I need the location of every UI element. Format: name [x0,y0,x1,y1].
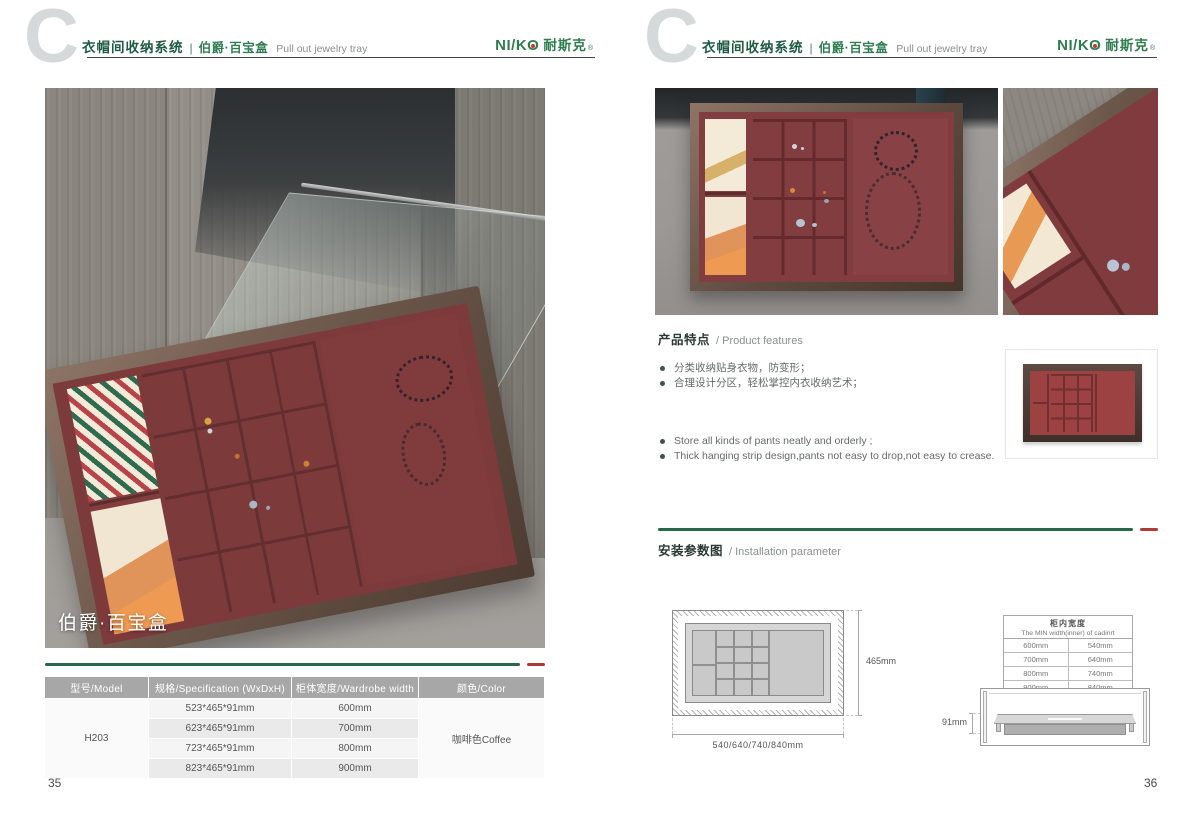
table-row: 800mm 740mm [1004,667,1132,681]
spec-cell: 900mm [292,759,418,778]
spec-cell: 800mm [292,739,418,758]
dimension-line [858,610,859,716]
product-features-english: Store all kinds of pants neatly and orde… [658,434,1018,464]
cabinet-outline [672,610,844,716]
header-subtitle: Pull out jewelry tray [276,43,367,55]
tray-floor-drawing [692,630,824,696]
jewelry-tray [690,103,963,291]
necklace [396,418,451,489]
feature-item: Thick hanging strip design,pants not eas… [658,449,1018,464]
table-title-zh: 柜内宽度 [1004,618,1132,629]
spec-color-cell: 咖啡色Coffee [419,699,544,778]
feature-item: 分类收纳贴身衣物，防变形； [658,361,1003,376]
min-width-table-header: 柜内宽度 The MIN width(inner) of cadinrt [1004,616,1132,639]
brand-trademark: ® [1150,45,1155,52]
tray-scarf-column [1033,374,1049,433]
features-title: 产品特点 / Product features [658,329,1003,348]
bullet-icon [660,454,665,459]
wall-line [768,631,770,695]
spec-header-specification: 规格/Specification (WxDxH) [149,677,291,698]
tray-profile-bottom [1004,724,1126,735]
tray-compartment-grid [753,119,847,275]
features-title-en: / Product features [716,335,803,347]
catalog-spread: C 衣帽间收纳系统 | 伯爵·百宝盒 Pull out jewelry tray… [0,0,1200,820]
wall-line [693,664,715,666]
spec-cell: 623*465*91mm [149,719,291,738]
table-row: 600mm 540mm [1004,639,1132,653]
header-titles: 衣帽间收纳系统 | 伯爵·百宝盒 Pull out jewelry tray [702,36,987,56]
table-row: 700mm 640mm [1004,653,1132,667]
header-series: 伯爵·百宝盒 [819,37,889,56]
brand-trademark: ® [588,45,593,52]
separator-red [527,663,545,666]
left-page-header: C 衣帽间收纳系统 | 伯爵·百宝盒 Pull out jewelry tray… [28,14,595,66]
wall-line [715,662,768,664]
tray-scarf-column [705,119,746,275]
separator-red [1140,528,1158,531]
bullet-icon [660,366,665,371]
spec-cell: 823*465*91mm [149,759,291,778]
wall-line [715,678,768,680]
features-title-zh: 产品特点 [658,329,710,348]
right-page-header: C 衣帽间收纳系统 | 伯爵·百宝盒 Pull out jewelry tray… [648,14,1157,66]
brand-logo-latin: NI/KO [1057,37,1101,54]
spec-header-color: 颜色/Color [419,677,544,698]
wardrobe-photo: 伯爵·百宝盒 [45,88,545,648]
extension-line [843,718,844,734]
header-rule [707,57,1157,58]
separator-green [658,528,1133,531]
spec-cell: 723*465*91mm [149,739,291,758]
header-series: 伯爵·百宝盒 [199,37,269,56]
page-number-left: 35 [48,776,61,790]
width-dimension-label: 540/640/740/840mm [672,740,844,750]
features-list-en: Store all kinds of pants neatly and orde… [658,434,1018,464]
dimension-line [972,713,973,734]
bullet-icon [660,439,665,444]
spec-table: 型号/Model 规格/Specification (WxDxH) 柜体宽度/W… [45,677,545,778]
product-features-section: 产品特点 / Product features 分类收纳贴身衣物，防变形； 合理… [658,329,1003,391]
bullet-icon [660,381,665,386]
min-width-table: 柜内宽度 The MIN width(inner) of cadinrt 600… [1003,615,1133,695]
features-list-zh: 分类收纳贴身衣物，防变形； 合理设计分区，轻松掌控内衣收纳艺术； [658,361,1003,391]
tray-interior [699,112,954,282]
scarf [705,197,746,275]
table-title-en: The MIN width(inner) of cadinrt [1004,630,1132,637]
spec-cell: 600mm [292,699,418,718]
brand-logo-cjk: 耐斯克 [1105,34,1149,54]
installation-title-zh: 安装参数图 [658,540,723,559]
extension-line [846,715,858,716]
header-titles: 衣帽间收纳系统 | 伯爵·百宝盒 Pull out jewelry tray [82,36,367,56]
header-category: 衣帽间收纳系统 [82,36,184,56]
installation-title: 安装参数图 / Installation parameter [658,540,841,559]
spec-header-model: 型号/Model [45,677,148,698]
tray-interior [1030,371,1135,435]
photo-caption: 伯爵·百宝盒 [58,608,168,635]
tray-frame-drawing [685,623,831,703]
scarf [705,119,746,191]
page-number-right: 36 [1144,776,1157,790]
sideview-drawing: 91mm [930,686,1158,750]
separator-line [45,663,545,666]
extension-line [672,718,673,734]
spec-cell: 523*465*91mm [149,699,291,718]
table-cell: 540mm [1069,639,1133,652]
cabinet-side-panel [1143,691,1147,743]
tray-divider [1095,374,1097,433]
wall-line [715,646,768,648]
height-dimension-label: 91mm [942,717,967,727]
brand-logo: NI/KO 耐斯克 ® [495,34,593,54]
tray-topview-photo [655,88,998,315]
cabinet-line [989,693,1141,694]
product-thumbnail [1005,349,1158,459]
brand-logo-cjk: 耐斯克 [543,34,587,54]
necklace [874,131,918,171]
jewelry-item [792,144,797,149]
table-cell: 740mm [1069,667,1133,680]
jewelry-item [249,500,258,509]
jewelry-item [1105,257,1122,274]
tray-compartment-grid [1051,374,1093,433]
c-monogram-icon: C [24,2,79,72]
header-rule [87,57,595,58]
cabinet-inner [678,616,838,710]
header-category: 衣帽间收纳系统 [702,36,804,56]
extension-line [846,610,858,611]
brand-logo-latin: NI/KO [495,37,539,54]
separator-green [45,663,520,666]
table-cell: 800mm [1004,667,1069,680]
tray-render [1023,364,1142,442]
feature-item: 合理设计分区，轻松掌控内衣收纳艺术； [658,376,1003,391]
header-divider: | [190,41,193,55]
depth-dimension-label: 465mm [866,656,896,666]
brand-logo: NI/KO 耐斯克 ® [1057,34,1155,54]
installation-title-en: / Installation parameter [729,546,841,558]
dimension-line [672,734,844,735]
table-cell: 700mm [1004,653,1069,666]
separator-line [658,528,1158,531]
tray-open-compartment [853,119,947,275]
feature-item: Store all kinds of pants neatly and orde… [658,434,1018,449]
table-cell: 600mm [1004,639,1069,652]
topview-drawing: 465mm 540/640/740/840mm [668,596,918,760]
necklace [392,350,458,406]
tray-divider [705,192,746,195]
c-monogram-icon: C [644,2,699,72]
spec-header-width: 柜体宽度/Wardrobe width [292,677,418,698]
jewelry-item [796,219,805,227]
header-divider: | [810,41,813,55]
tray-corner-photo [1003,88,1158,315]
tray-logo-mark [1048,718,1082,720]
cabinet-section [980,688,1150,746]
cabinet-side-panel [983,691,987,743]
header-subtitle: Pull out jewelry tray [896,43,987,55]
necklace [865,172,921,250]
table-cell: 640mm [1069,653,1133,666]
spec-model-cell: H203 [45,699,148,778]
jewelry-item [204,417,212,425]
spec-cell: 700mm [292,719,418,738]
